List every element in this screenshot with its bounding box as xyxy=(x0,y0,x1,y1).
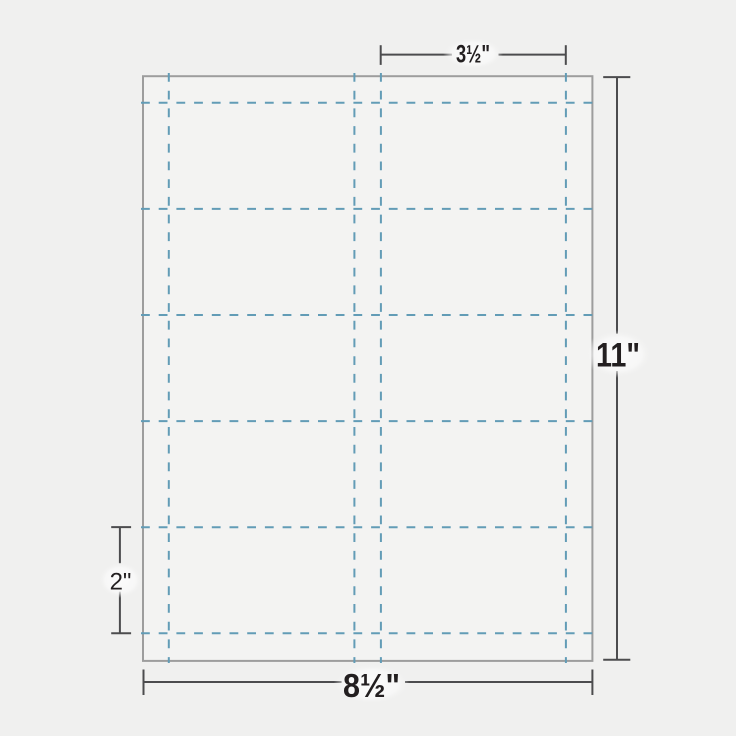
svg-text:11": 11" xyxy=(596,337,640,375)
svg-text:3½": 3½" xyxy=(456,41,490,69)
svg-text:2": 2" xyxy=(110,569,132,596)
svg-text:8½": 8½" xyxy=(343,667,400,704)
